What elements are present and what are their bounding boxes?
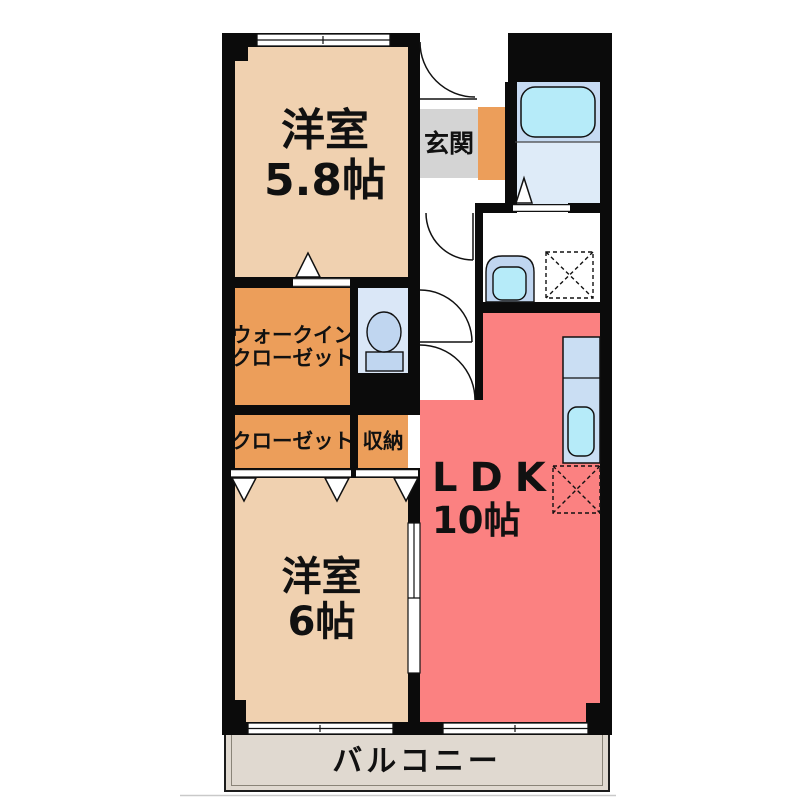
closet-label: クローゼット [231, 430, 354, 453]
storage-label: 収納 [363, 430, 404, 453]
room-walk-in-closet: ウォークイン クローゼット [235, 288, 350, 405]
wall [600, 33, 612, 735]
wall [350, 288, 358, 478]
wall [475, 302, 612, 313]
walk-in-closet-label-line2: クローゼット [231, 347, 354, 370]
wall [505, 82, 517, 213]
wall [408, 478, 420, 735]
walk-in-closet-label-line1: ウォークイン [231, 324, 354, 347]
toilet-door-arc [420, 290, 472, 342]
floor-plan: 洋室 5.8帖 玄関 ウォークイン クローゼット クローゼット 収納 洋室 6帖… [0, 0, 800, 800]
wall [475, 203, 515, 213]
wall [568, 203, 612, 213]
wall [358, 373, 420, 415]
wall [222, 33, 235, 735]
room-ldk-main [420, 400, 600, 722]
vanity-sink-icon [486, 256, 534, 302]
washing-machine-space [546, 252, 593, 298]
room-entrance: 玄関 [420, 109, 478, 178]
bathroom-floor [515, 142, 600, 208]
room-western-top-label: 洋室 [281, 106, 369, 155]
ldk-door-swing-area [420, 345, 475, 400]
room-western-top: 洋室 5.8帖 [235, 40, 415, 285]
room-closet: クローゼット [235, 415, 350, 468]
room-ldk-size: 10帖 [432, 500, 558, 543]
wall [222, 33, 418, 47]
wall [222, 722, 612, 735]
entrance-door-arc [420, 42, 477, 99]
wall [222, 277, 420, 288]
wall [586, 703, 612, 735]
balcony: バルコニー [224, 734, 610, 792]
washroom-door-arc [426, 213, 473, 260]
room-western-top-size: 5.8帖 [264, 156, 386, 205]
wall [222, 700, 246, 730]
room-storage: 収納 [358, 415, 408, 468]
room-entrance-label: 玄関 [424, 130, 474, 158]
balcony-label: バルコニー [332, 745, 501, 779]
room-western-bottom-label: 洋室 [282, 555, 362, 600]
room-western-bottom-size: 6帖 [288, 600, 356, 645]
wall [222, 405, 358, 415]
wall [508, 33, 612, 82]
room-ldk-label: LDK [432, 456, 558, 500]
room-ldk-upper [483, 313, 600, 400]
room-western-bottom: 洋室 6帖 [235, 478, 408, 722]
bathroom-tub-zone [515, 82, 600, 142]
wall [222, 468, 420, 478]
room-ldk-label-block: LDK 10帖 [432, 456, 558, 543]
wall [408, 33, 420, 415]
wall [222, 33, 248, 61]
toilet-room [358, 288, 408, 373]
